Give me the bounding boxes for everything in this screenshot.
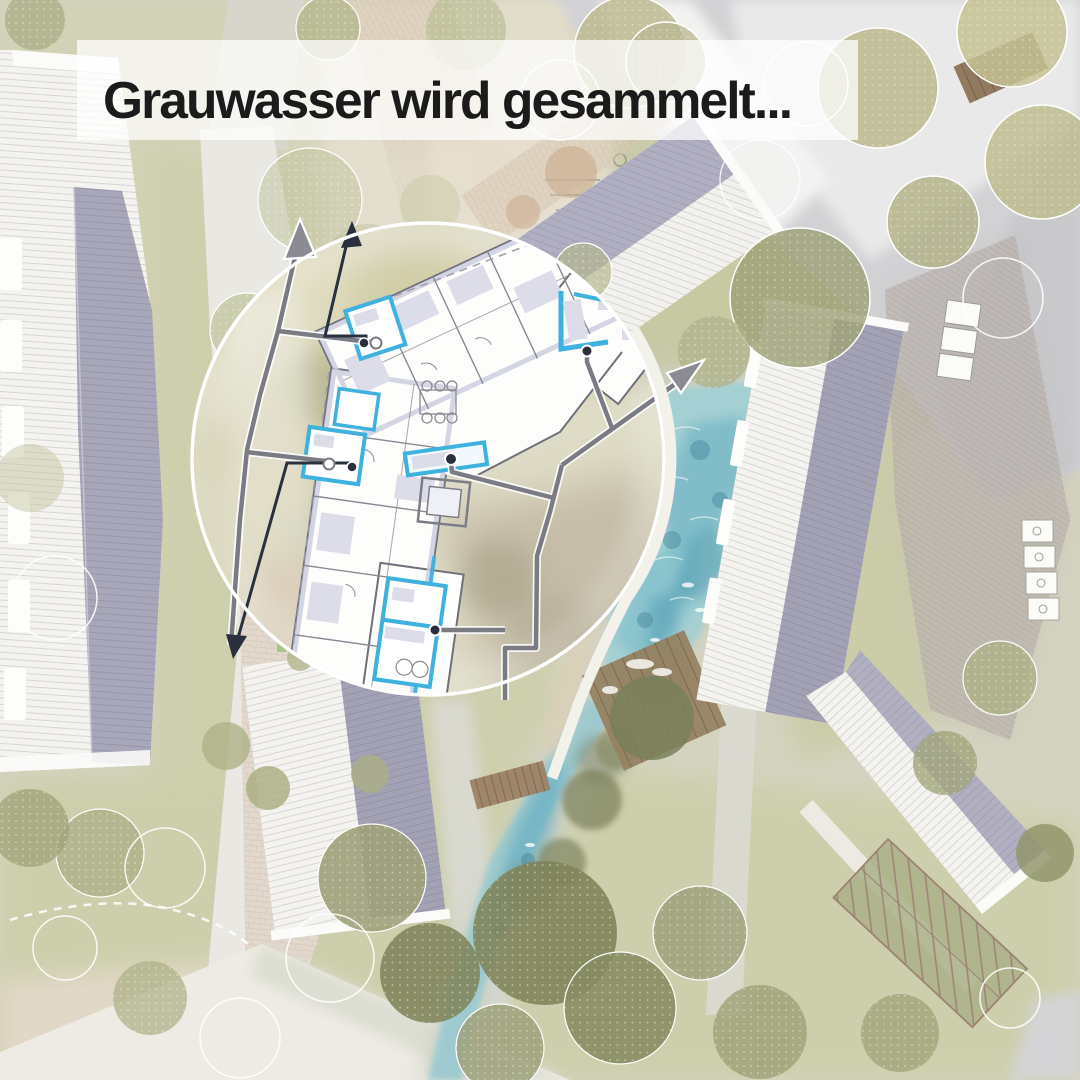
svg-text:Grauwasser wird gesammelt...: Grauwasser wird gesammelt... <box>103 71 791 129</box>
